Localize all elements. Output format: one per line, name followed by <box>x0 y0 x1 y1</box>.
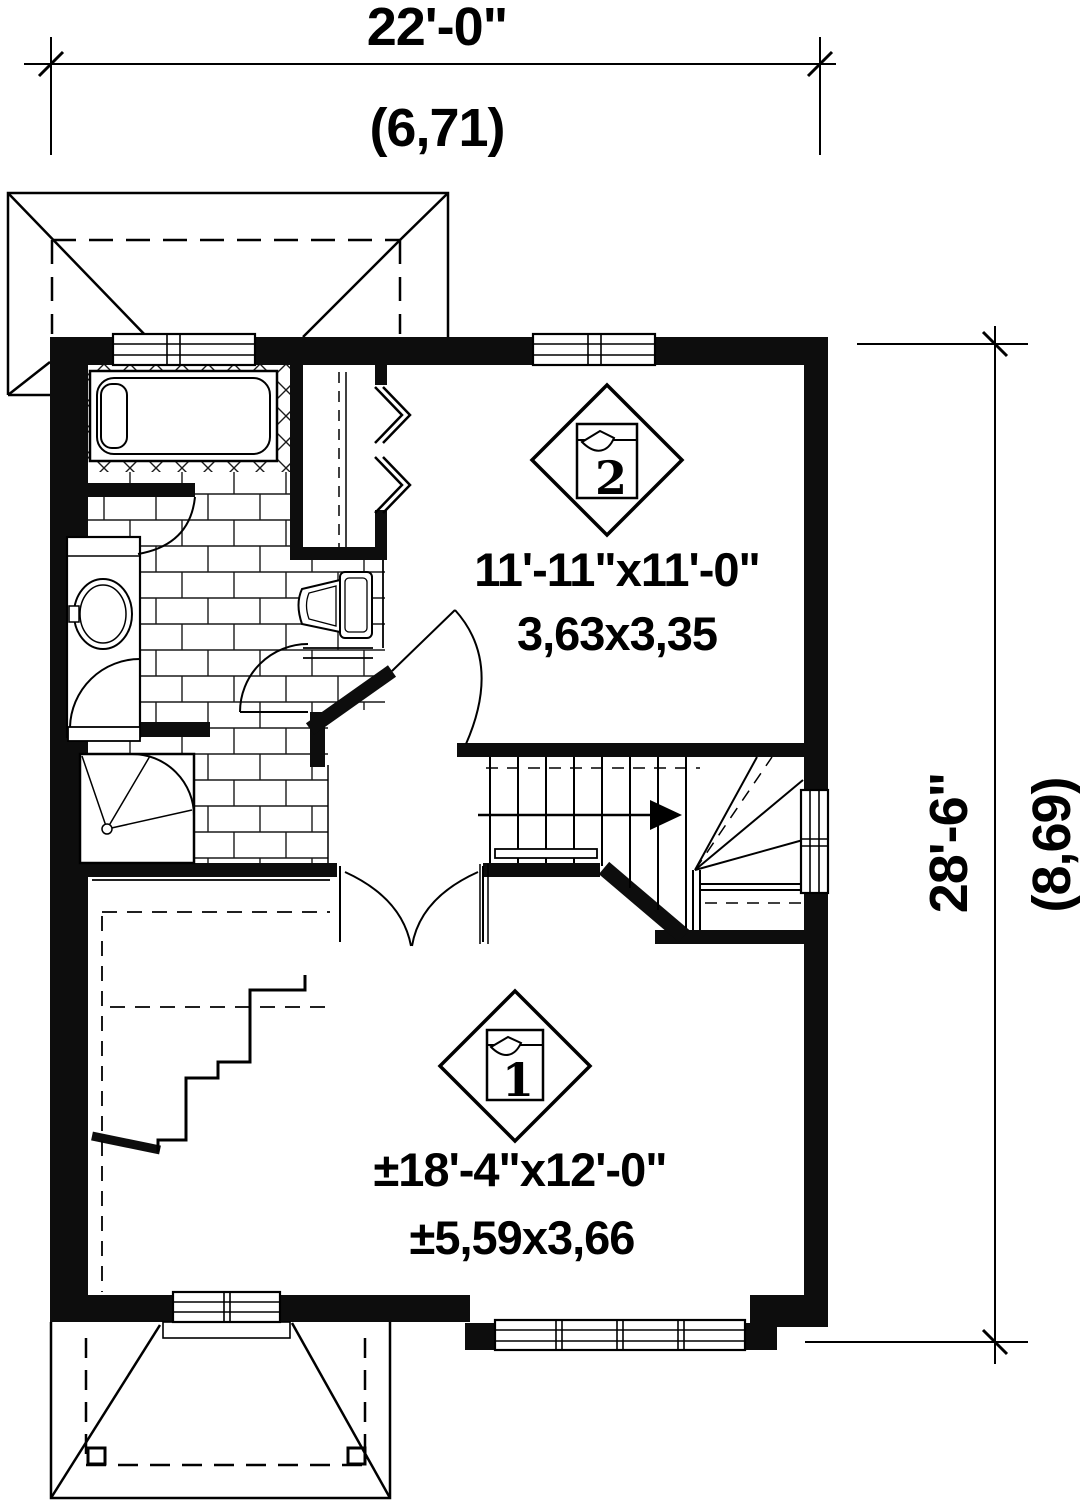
window-bottom-left <box>163 1292 290 1338</box>
stair-direction-arrow-icon <box>478 800 682 830</box>
room2-door <box>392 610 482 744</box>
stair-handrail <box>495 849 597 858</box>
right-wall-upper <box>804 365 828 790</box>
tub-pillow <box>101 384 127 448</box>
corner-shower <box>80 754 194 863</box>
window-sill <box>163 1322 290 1338</box>
room1-size-label: ±18'-4"x12'-0" ±5,59x3,66 <box>374 1143 667 1264</box>
room1-size-metric: ±5,59x3,66 <box>410 1211 635 1264</box>
right-dimension-metric: (8,69) <box>1022 777 1080 912</box>
right-dimension-imperial: 28'-6" <box>919 773 979 914</box>
shower-drain <box>102 824 112 834</box>
stair-winders <box>693 757 803 930</box>
room2-size-imperial: 11'-11"x11'-0" <box>474 543 760 596</box>
room1-size-imperial: ±18'-4"x12'-0" <box>374 1143 667 1196</box>
room1-marker-number: 1 <box>502 1053 534 1107</box>
stair-diagonal-wall <box>604 868 684 936</box>
bathroom-hall-wall <box>88 863 337 877</box>
window-right-stairwell <box>801 790 828 893</box>
bottom-right-step <box>750 1295 828 1327</box>
room2-marker-number: 2 <box>595 451 627 505</box>
hall-double-doors <box>340 866 483 946</box>
bathtub <box>90 371 277 461</box>
window-bottom-right <box>495 1320 745 1350</box>
top-dimension-metric: (6,71) <box>369 98 504 158</box>
faucet <box>69 606 79 622</box>
porch-roof-outline <box>51 1322 390 1498</box>
window-top-left <box>113 334 255 365</box>
room1-step-lines <box>158 975 305 1152</box>
right-wall-lower <box>804 893 828 1295</box>
room1-marker: 1 <box>440 991 590 1141</box>
window-top-center <box>533 334 655 365</box>
room2-size-label: 11'-11"x11'-0" 3,63x3,35 <box>474 543 760 660</box>
closet-bottom-wall <box>290 547 387 560</box>
room1-knee-wall-lines <box>92 880 330 1292</box>
floor-plan-sheet: 2 1 11'-11"x11'-0" 3,63x3,35 ±18'-4"x12'… <box>0 0 1080 1505</box>
closet-door-chevrons <box>375 387 410 513</box>
floor-plan-drawing: 2 1 11'-11"x11'-0" 3,63x3,35 ±18'-4"x12'… <box>0 0 1080 1505</box>
top-dimension-imperial: 22'-0" <box>367 0 508 57</box>
room2-marker: 2 <box>532 385 682 535</box>
closet <box>339 372 410 547</box>
stair-top-wall <box>457 743 804 757</box>
right-dimension <box>805 326 1028 1364</box>
porch-post <box>88 1448 105 1464</box>
vanity-sink <box>67 537 140 737</box>
room2-size-metric: 3,63x3,35 <box>517 607 717 660</box>
closet-left-wall <box>290 365 303 560</box>
